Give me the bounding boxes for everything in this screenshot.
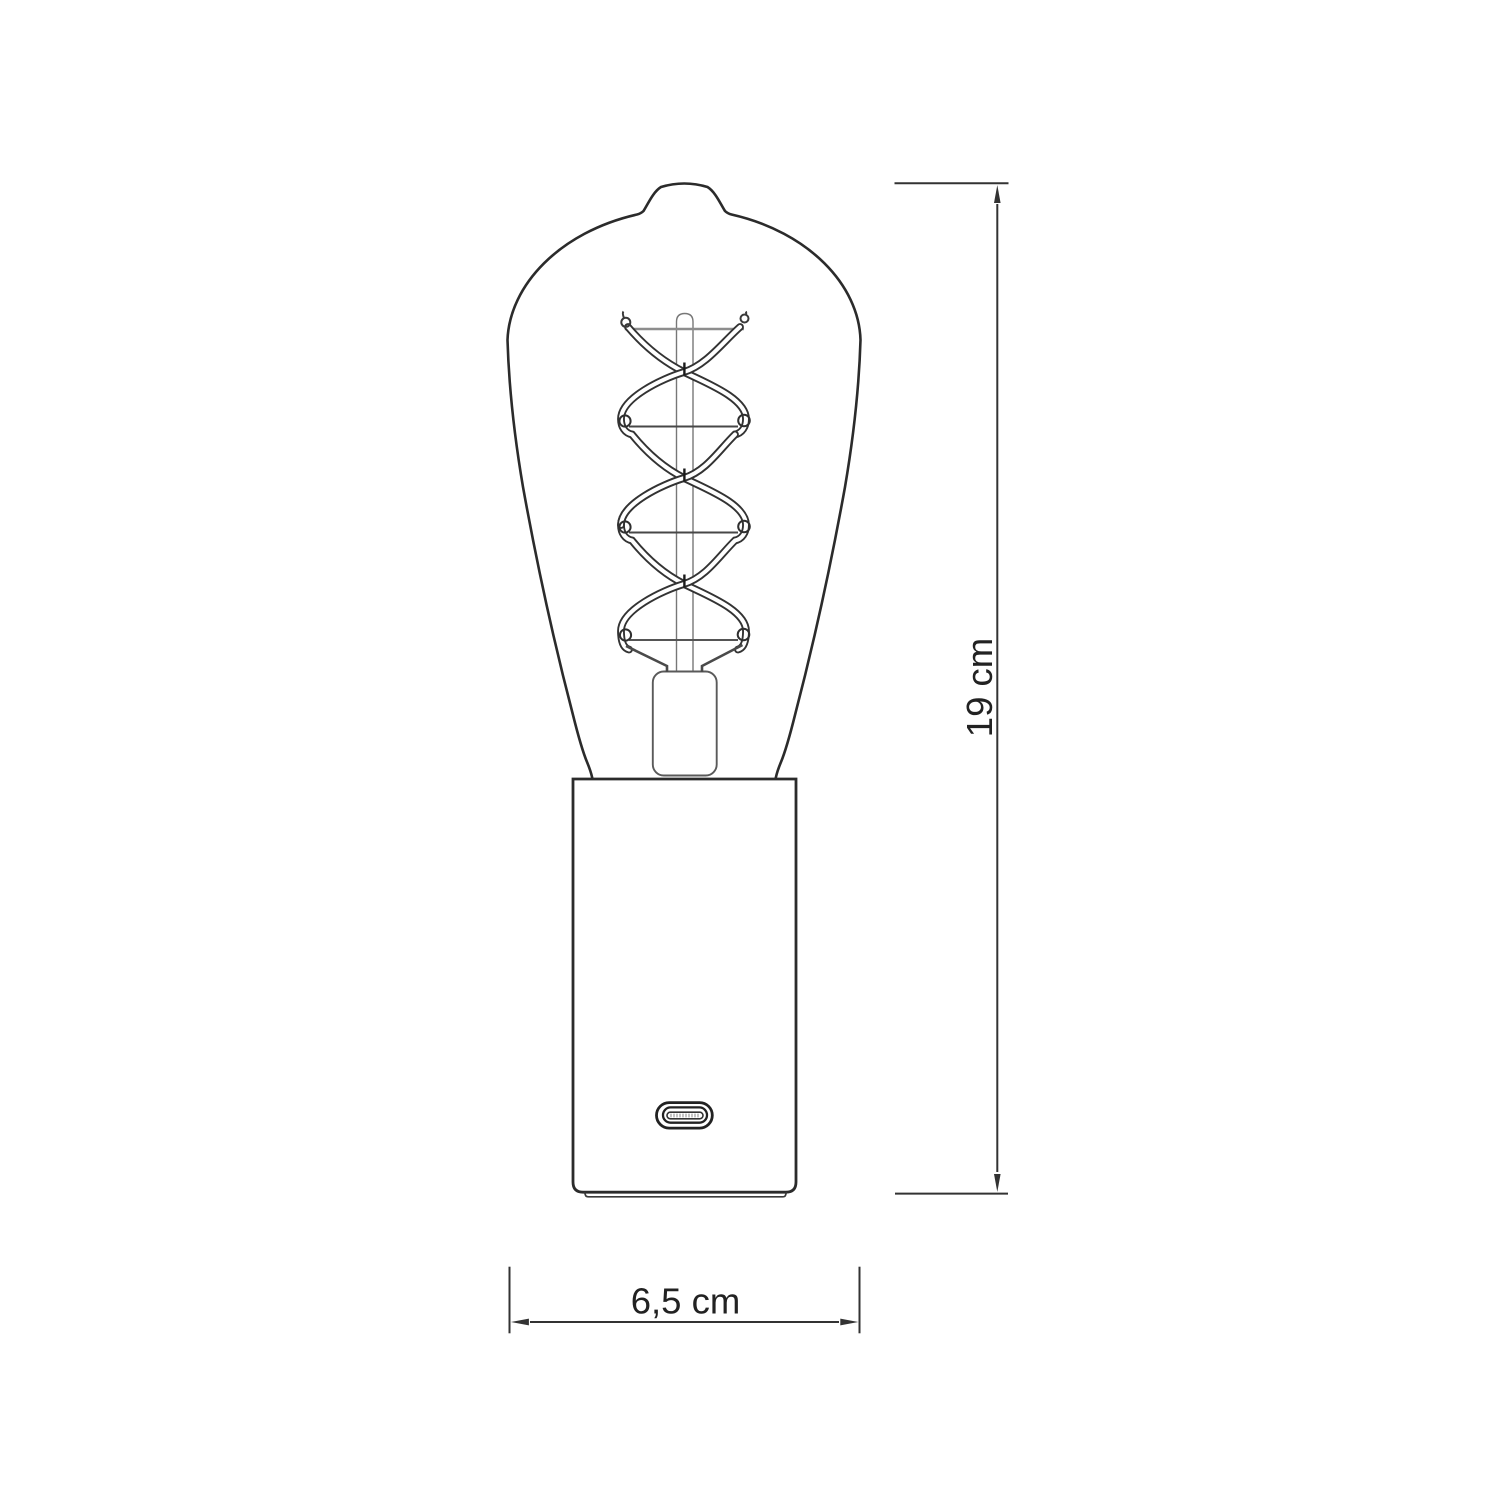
- svg-text:19 cm: 19 cm: [959, 638, 1000, 737]
- svg-text:6,5 cm: 6,5 cm: [631, 1281, 741, 1322]
